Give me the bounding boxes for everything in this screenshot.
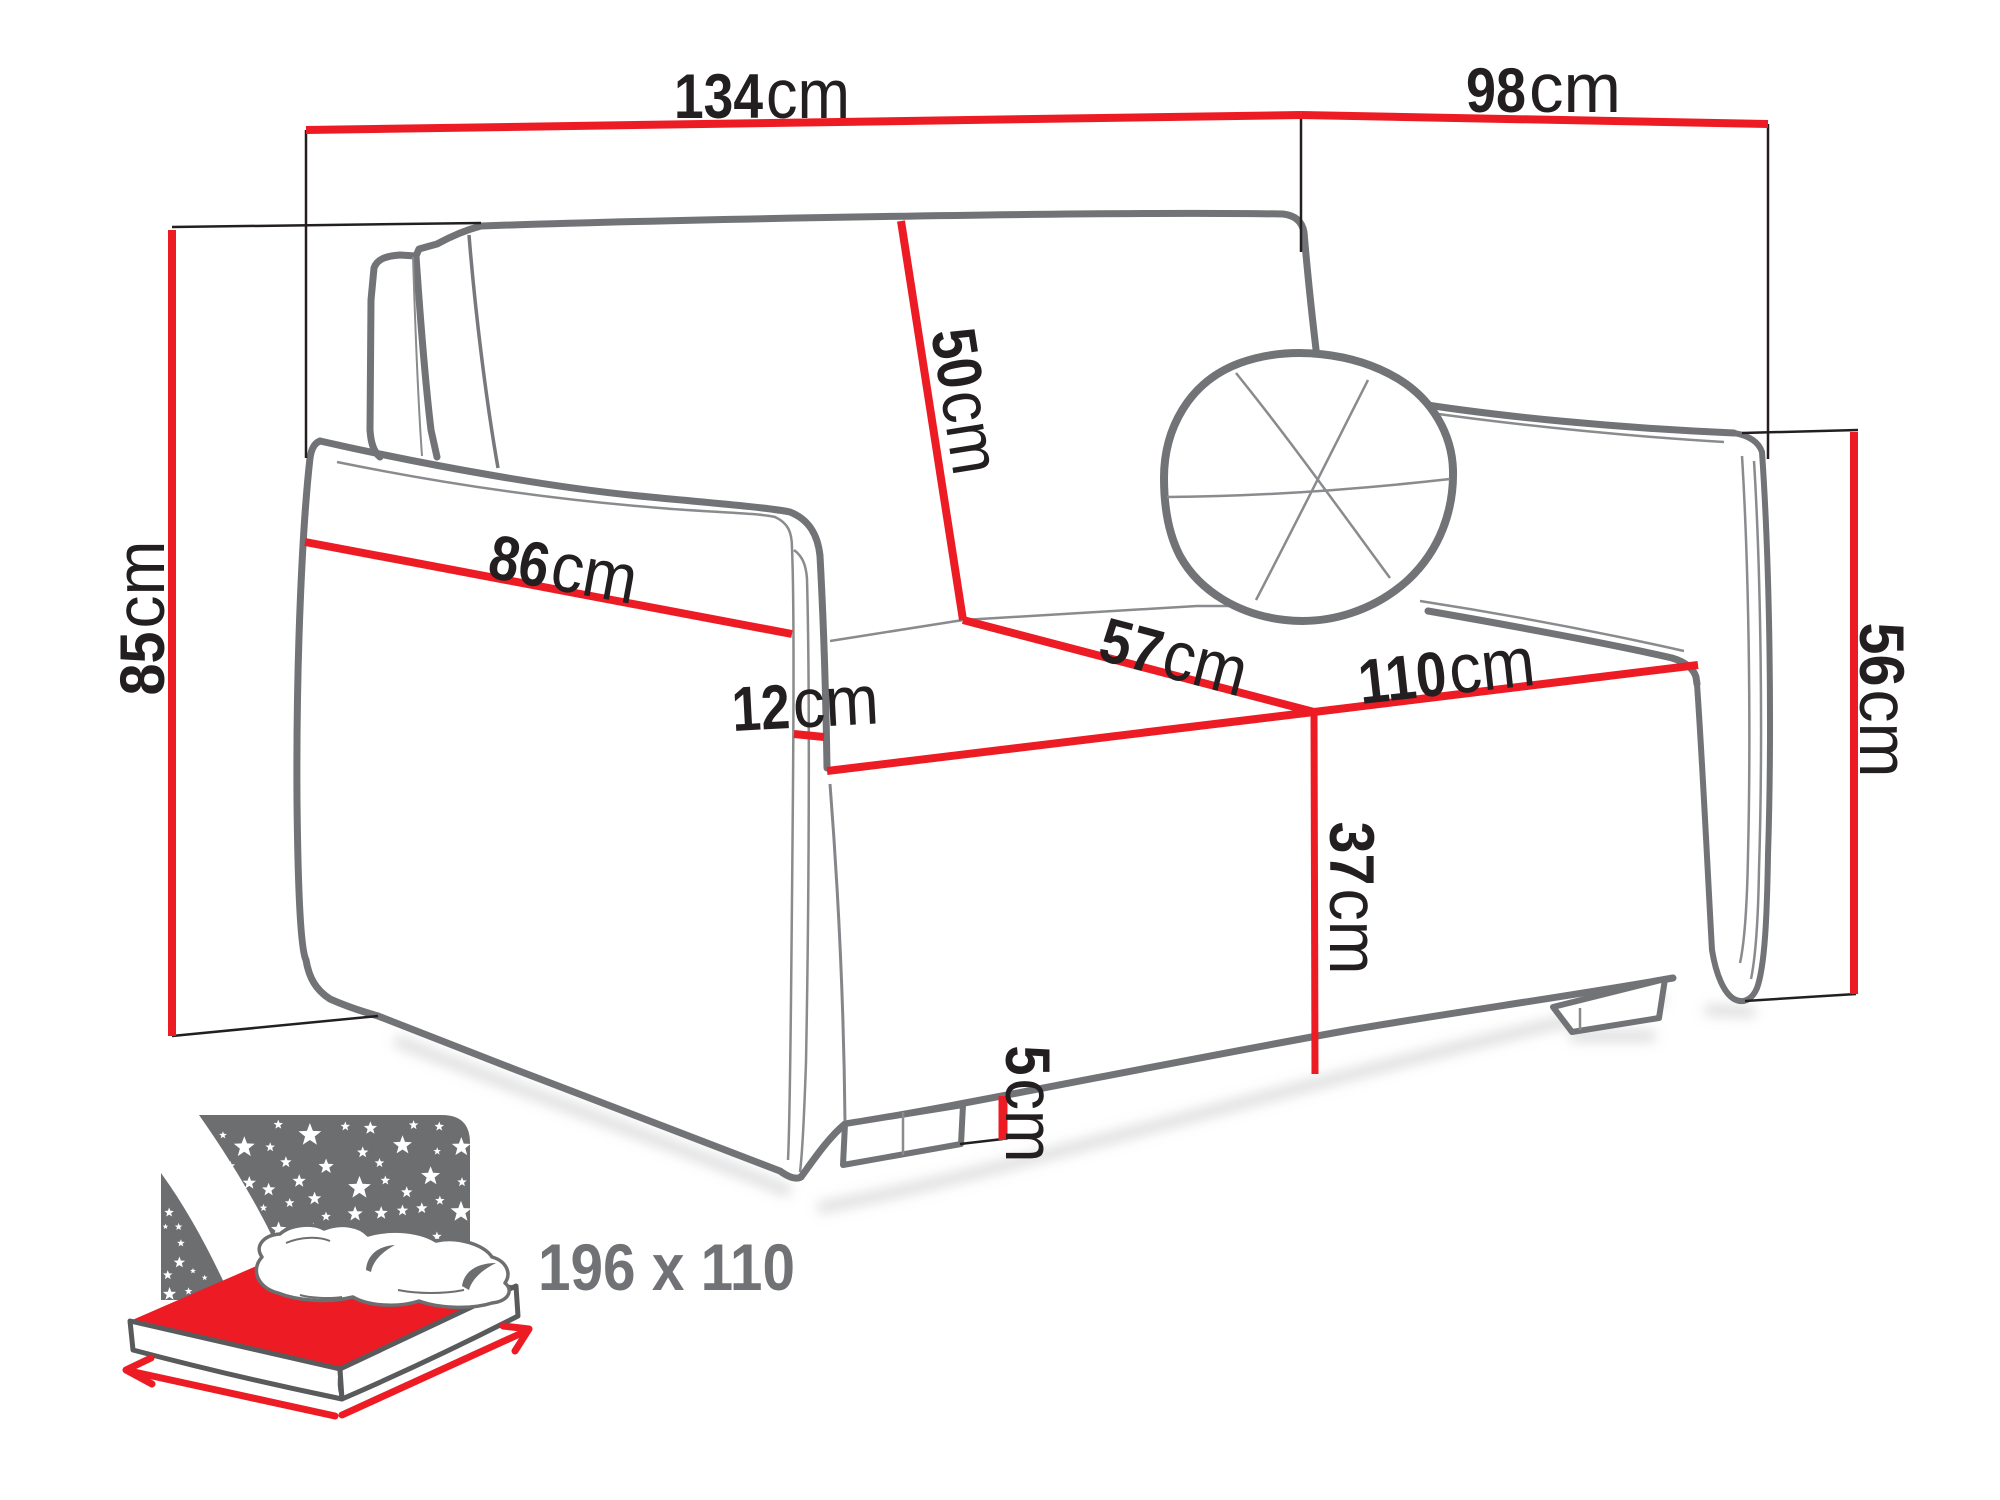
svg-text:85cm: 85cm <box>101 541 179 696</box>
svg-text:12cm: 12cm <box>730 660 881 746</box>
svg-text:37cm: 37cm <box>1315 822 1393 975</box>
svg-text:56cm: 56cm <box>1845 623 1923 778</box>
svg-text:196 x 110: 196 x 110 <box>538 1230 795 1304</box>
svg-text:98cm: 98cm <box>1466 49 1621 127</box>
svg-text:5cm: 5cm <box>991 1046 1069 1163</box>
svg-text:134cm: 134cm <box>674 55 850 133</box>
